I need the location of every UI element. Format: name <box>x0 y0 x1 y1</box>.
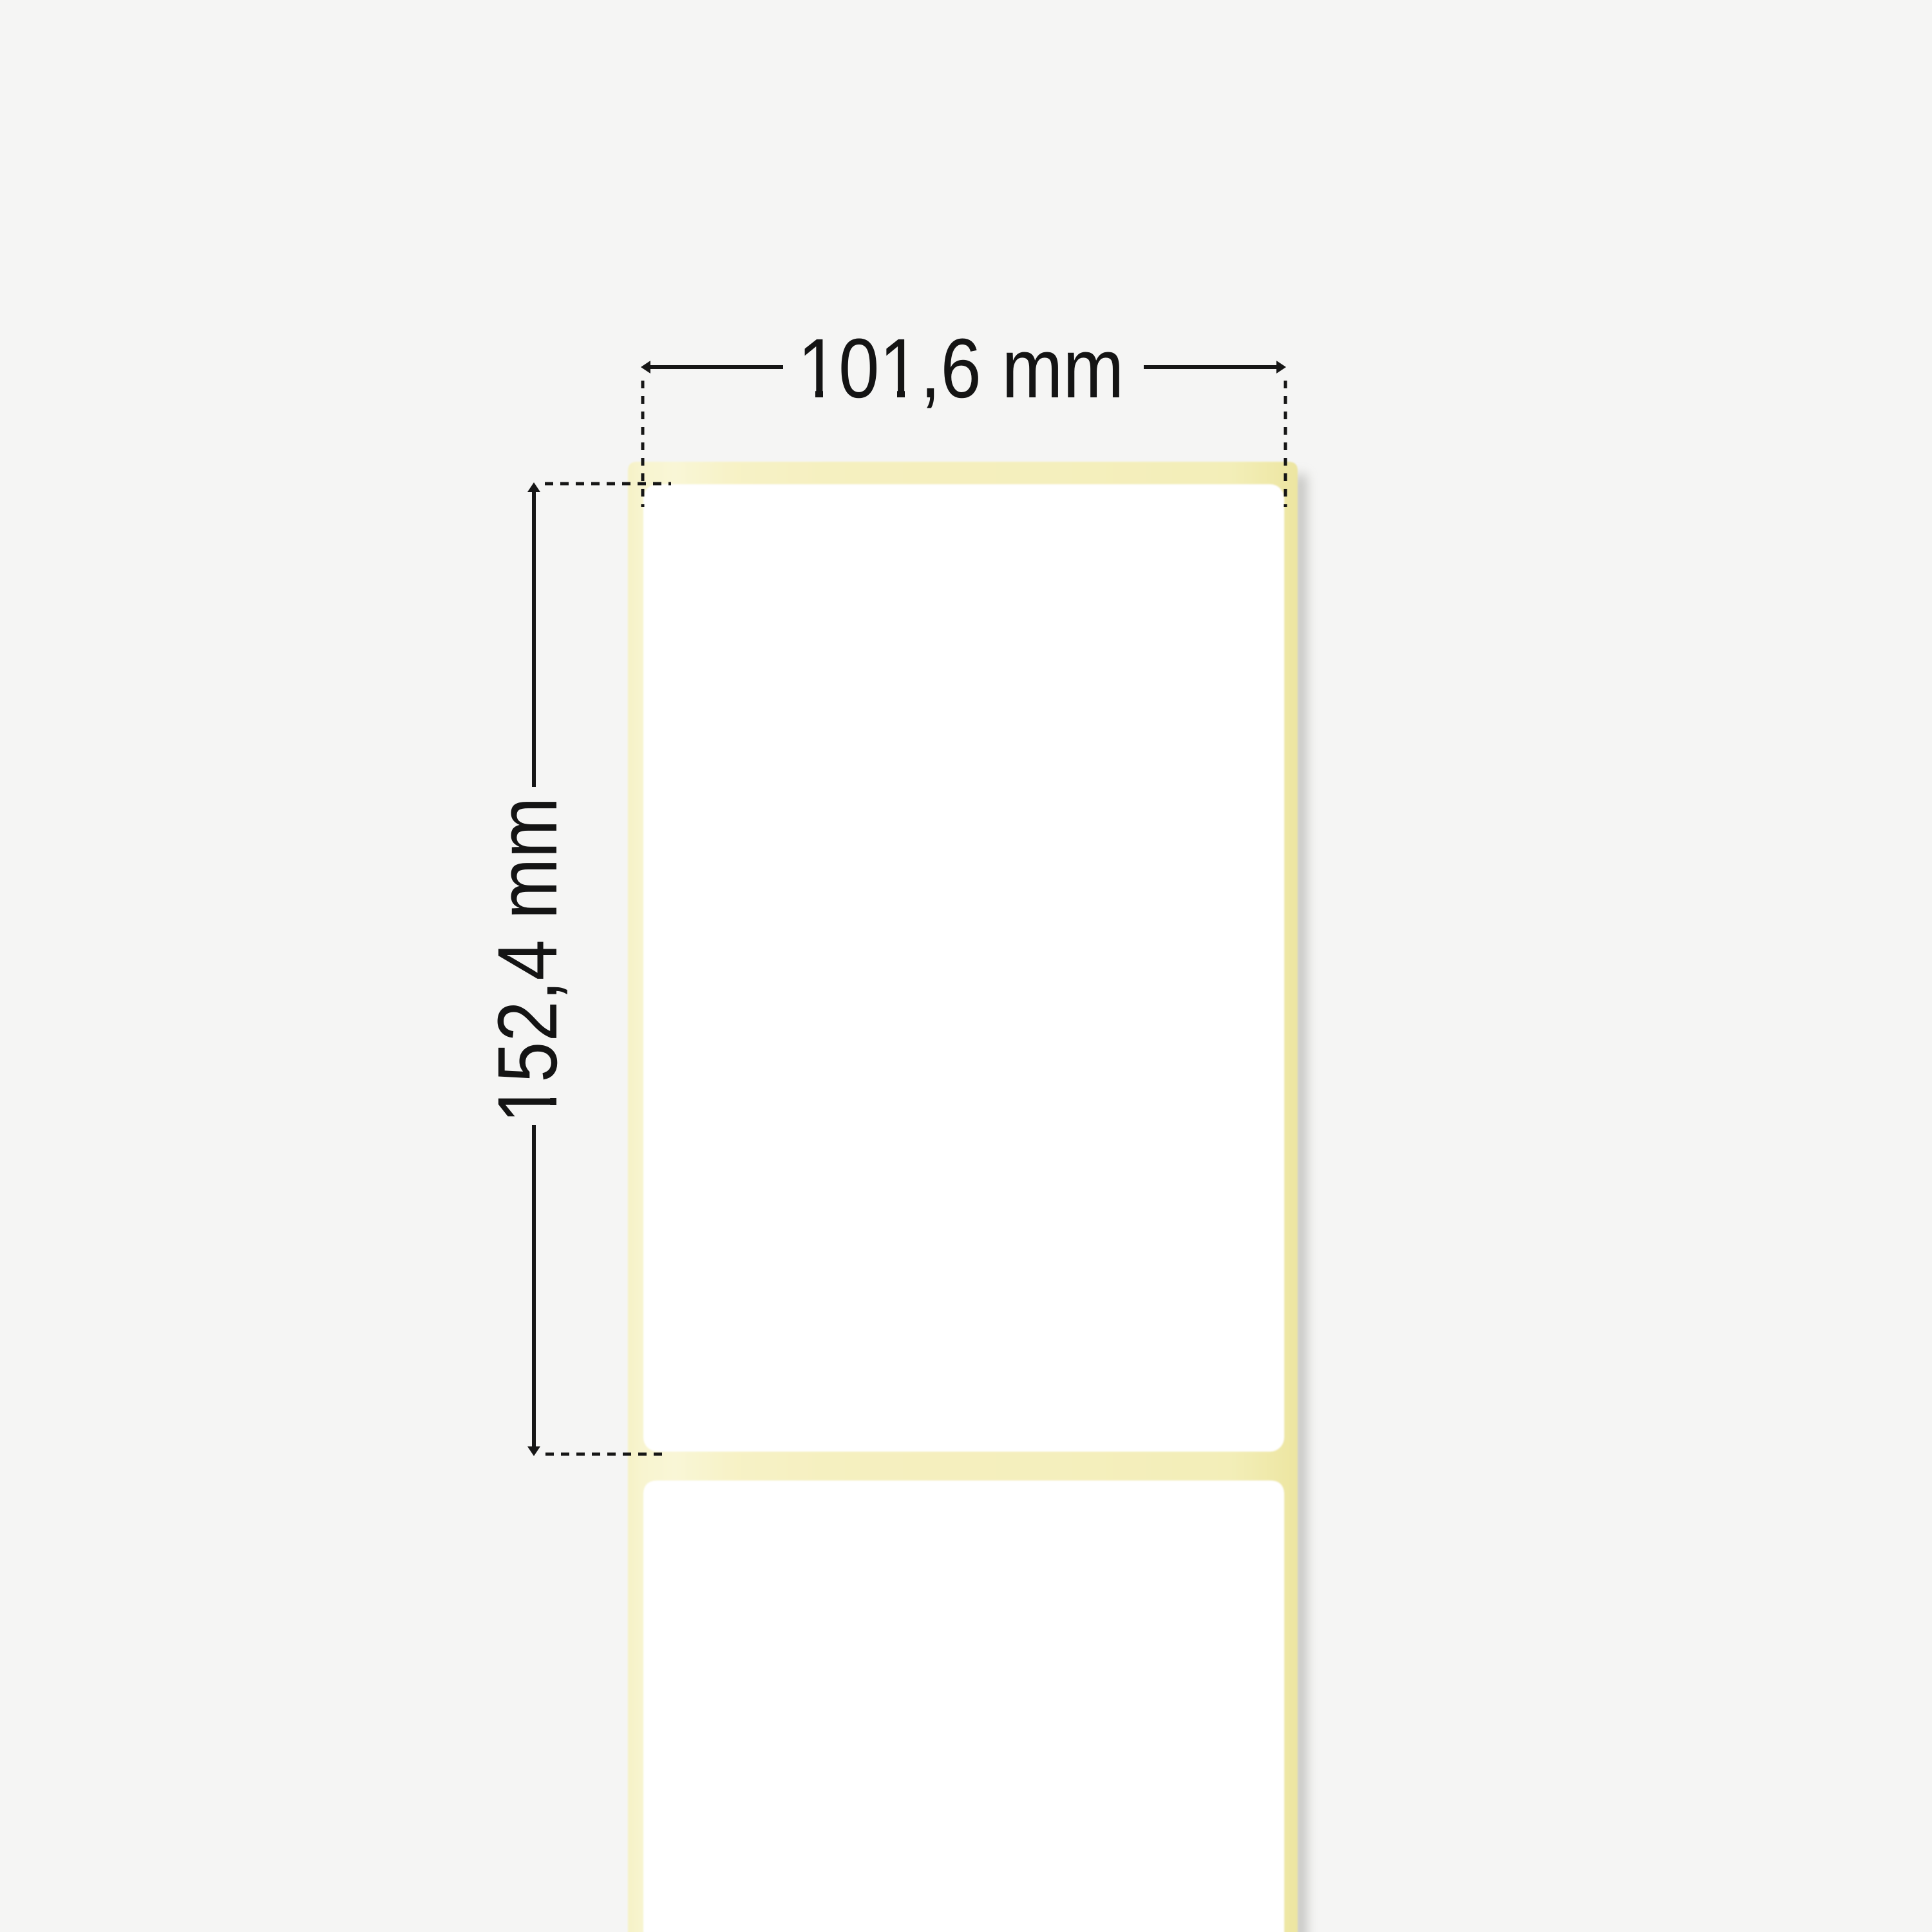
svg-text:101,6 mm: 101,6 mm <box>798 322 1124 416</box>
svg-text:152,4 mm: 152,4 mm <box>481 797 575 1124</box>
